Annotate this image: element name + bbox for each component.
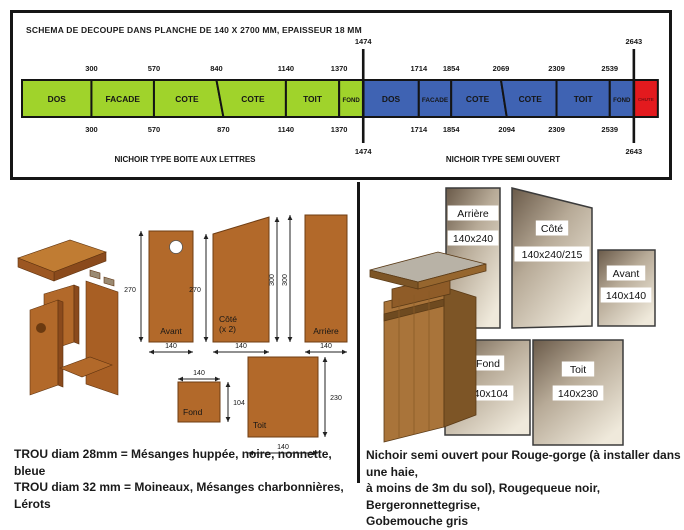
- semi-open-note-line: à moins de 3m du sol), Rougequeue noir, …: [366, 480, 682, 513]
- semi-panel-label: Avant: [613, 268, 640, 280]
- semi-panel-size: 140x140: [606, 290, 646, 302]
- tick-label-top: 1140: [278, 64, 294, 73]
- dim-arrow: [288, 215, 293, 220]
- tick-label-top: 1854: [443, 64, 461, 73]
- cutting-schema-frame: SCHEMA DE DECOUPE DANS PLANCHE DE 140 X …: [10, 10, 672, 180]
- boundary-label-top: 1474: [355, 37, 373, 46]
- panel-label-cote: Côté: [219, 314, 237, 324]
- tick-label-top: 840: [210, 64, 223, 73]
- dim-arrow: [275, 217, 280, 222]
- tick-label-top: 300: [85, 64, 98, 73]
- section-name: NICHOIR TYPE SEMI OUVERT: [446, 155, 560, 164]
- dim-300: 300: [282, 274, 289, 286]
- dim-arrow: [204, 234, 209, 239]
- dim-arrow: [215, 377, 220, 382]
- dim-140: 140: [320, 343, 332, 350]
- exploded-side-panel: [86, 281, 118, 395]
- tick-label-bottom: 1714: [410, 125, 428, 134]
- tick-label-bottom: 870: [217, 125, 230, 134]
- dim-270: 270: [189, 287, 201, 294]
- dim-arrow: [288, 337, 293, 342]
- exploded-back-panel-edge: [74, 285, 79, 344]
- dim-arrow: [323, 357, 328, 362]
- dim-arrow: [188, 350, 193, 355]
- tick-label-bottom: 1140: [278, 125, 294, 134]
- dim-arrow: [149, 350, 154, 355]
- semi-open-note-line: Nichoir semi ouvert pour Rouge-gorge (à …: [366, 447, 682, 480]
- dim-arrow: [264, 350, 269, 355]
- segment-label: FACADE: [105, 94, 140, 104]
- tick-label-top: 2539: [601, 64, 618, 73]
- panel-label-arriere: Arrière: [313, 326, 339, 336]
- panel-label-toit: Toit: [253, 420, 267, 430]
- dim-arrow: [178, 377, 183, 382]
- exploded-cleat: [104, 277, 114, 286]
- letterbox-nichoir-plan: Avant270140Côté(x 2)270300140Arrière3001…: [10, 182, 358, 460]
- panel-label-fond: Fond: [183, 407, 203, 417]
- semi-panel-label: Arrière: [457, 208, 489, 220]
- panel-label-avant: Avant: [160, 326, 182, 336]
- semi-open-note: Nichoir semi ouvert pour Rouge-gorge (à …: [366, 447, 682, 530]
- semi-panel-size: 140x230: [558, 388, 598, 400]
- tick-label-bottom: 2539: [601, 125, 618, 134]
- tick-label-top: 1370: [331, 64, 348, 73]
- segment-label: COTE: [241, 94, 265, 104]
- tick-label-bottom: 2094: [498, 125, 516, 134]
- dim-140: 140: [193, 370, 205, 377]
- dim-arrow: [139, 337, 144, 342]
- dim-140: 140: [235, 343, 247, 350]
- segment-label: FOND: [343, 97, 361, 104]
- segment-label: FACADE: [422, 97, 449, 104]
- segment-label: DOS: [382, 94, 401, 104]
- hole-note-32: TROU diam 32 mm = Moineaux, Mésanges cha…: [14, 479, 359, 512]
- tick-label-bottom: 1854: [443, 125, 461, 134]
- segment-label: DOS: [48, 94, 67, 104]
- exploded-front-panel: [30, 300, 58, 395]
- exploded-front-panel-edge: [58, 300, 63, 387]
- boundary-label-bottom: 1474: [355, 147, 373, 156]
- house-side: [444, 287, 476, 427]
- segment-label: COTE: [519, 94, 543, 104]
- tick-label-bottom: 1370: [331, 125, 348, 134]
- semi-panel-size: 140x240: [453, 233, 493, 245]
- panel-arriere: [305, 215, 347, 342]
- tick-label-top: 570: [148, 64, 161, 73]
- dim-arrow: [305, 350, 310, 355]
- segment-label: COTE: [466, 94, 490, 104]
- segment-label: COTE: [175, 94, 199, 104]
- hole-diameter-notes: TROU diam 28mm = Mésanges huppée, noire,…: [14, 446, 359, 512]
- hole-note-28: TROU diam 28mm = Mésanges huppée, noire,…: [14, 446, 359, 479]
- offcut-label: CHUTE: [638, 97, 654, 102]
- semi-panel-label: Toit: [570, 364, 586, 376]
- boundary-label-bottom: 2643: [626, 147, 643, 156]
- cutting-diagram: DOSFACADECOTECOTETOITFOND300570840114013…: [13, 13, 669, 177]
- exploded-entry-hole: [36, 323, 46, 333]
- tick-label-bottom: 300: [85, 125, 98, 134]
- segment-label: TOIT: [574, 94, 594, 104]
- semi-open-note-line: Gobemouche gris: [366, 513, 682, 530]
- tick-label-top: 2069: [493, 64, 510, 73]
- dim-140: 140: [165, 343, 177, 350]
- dim-arrow: [323, 432, 328, 437]
- tick-label-bottom: 2309: [548, 125, 565, 134]
- dim-arrow: [342, 350, 347, 355]
- section-divider: [357, 182, 360, 483]
- dim-arrow: [213, 350, 218, 355]
- dim-270: 270: [124, 287, 136, 294]
- tick-label-top: 2309: [548, 64, 565, 73]
- avant-hole: [170, 241, 183, 254]
- dim-arrow: [275, 337, 280, 342]
- section-name: NICHOIR TYPE BOITE AUX LETTRES: [114, 155, 256, 164]
- dim-arrow: [204, 337, 209, 342]
- semi-open-nichoir-plan: Arrière140x240Côté140x240/215Avant140x14…: [362, 182, 684, 482]
- exploded-cleat: [90, 270, 100, 279]
- dim-230: 230: [330, 395, 342, 402]
- dim-104: 104: [233, 400, 245, 407]
- dim-arrow: [226, 382, 231, 387]
- segment-label: FOND: [613, 97, 631, 104]
- semi-panel-size: 140x240/215: [522, 249, 583, 261]
- segment-label: TOIT: [303, 94, 323, 104]
- boundary-label-top: 2643: [626, 37, 643, 46]
- tick-label-bottom: 570: [148, 125, 161, 134]
- semi-panel-label: Côté: [541, 223, 563, 235]
- dim-300: 300: [269, 274, 276, 286]
- semi-panel-label: Fond: [476, 358, 500, 370]
- dim-arrow: [139, 231, 144, 236]
- panel-label-cote-qty: (x 2): [219, 324, 236, 334]
- dim-arrow: [226, 417, 231, 422]
- tick-label-top: 1714: [410, 64, 428, 73]
